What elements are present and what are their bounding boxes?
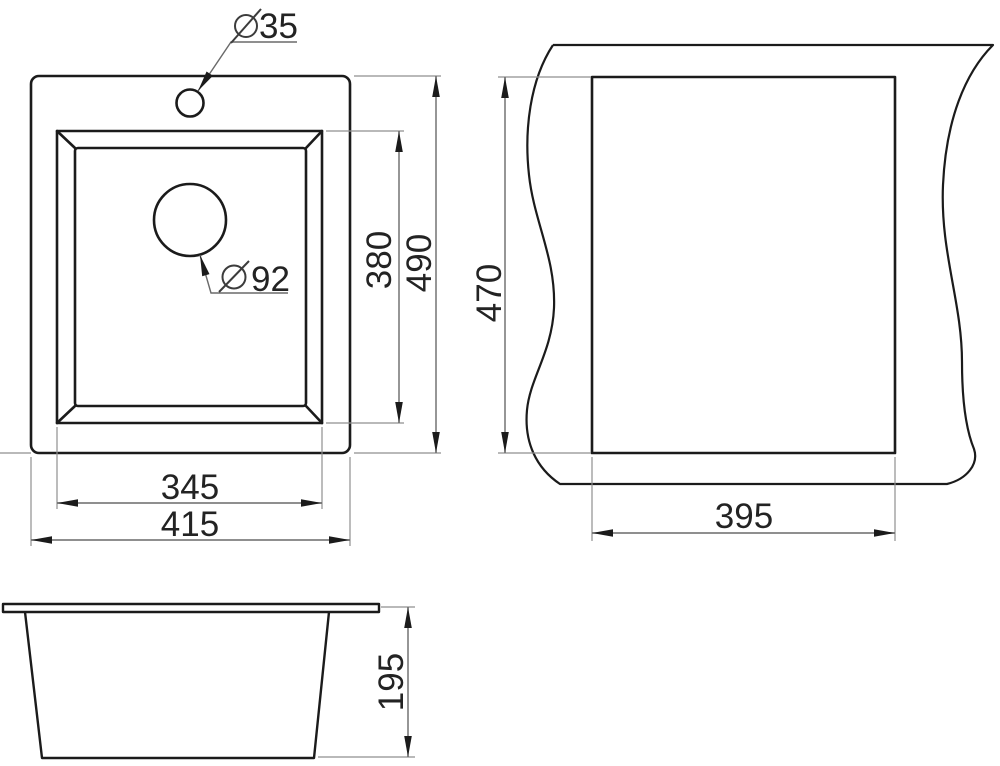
countertop-cutout-view: 470 395 (470, 45, 993, 541)
faucet-hole-diameter-value: 35 (259, 7, 298, 46)
overall-width-value: 415 (161, 505, 219, 544)
sink-top-view: 35 92 345 415 (0, 7, 441, 546)
rim-profile (3, 604, 379, 612)
cutout-opening (592, 77, 895, 453)
dim-bowl-depth: 195 (318, 607, 415, 757)
diameter-symbol (231, 9, 261, 43)
drain-hole-diameter-value: 92 (251, 260, 290, 299)
overall-length-value: 490 (400, 234, 439, 292)
bowl-profile (25, 612, 329, 758)
bowl-depth-value: 195 (372, 653, 411, 711)
bowl-width-value: 345 (161, 468, 219, 507)
cutout-width-value: 395 (715, 497, 773, 536)
sink-dimension-drawing: 35 92 345 415 (0, 0, 1000, 766)
sink-outer-edge (31, 76, 350, 453)
cutout-height-value: 470 (470, 264, 509, 322)
bowl-length-value: 380 (360, 231, 399, 289)
technical-drawing-canvas: 35 92 345 415 (0, 0, 1000, 766)
sink-side-view: 195 (3, 604, 415, 758)
